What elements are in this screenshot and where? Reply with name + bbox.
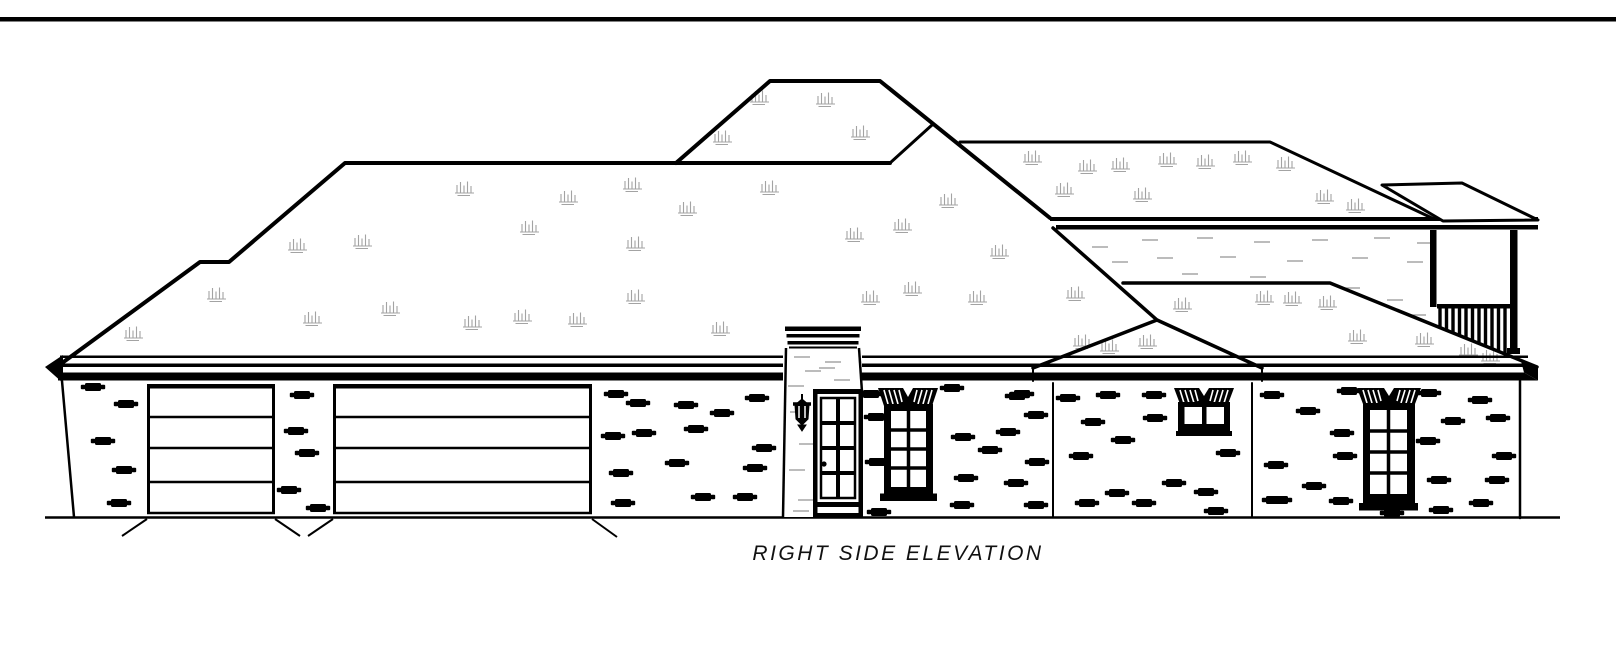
roof-outline — [58, 81, 1432, 381]
rear-hip-line — [890, 125, 932, 163]
brick-mark — [996, 428, 1020, 436]
brick-mark — [1162, 479, 1186, 487]
brick-mark — [752, 444, 776, 452]
brick-mark — [1260, 391, 1284, 399]
brick-mark — [867, 508, 891, 516]
brick-mark — [1264, 461, 1288, 469]
roof-texture-mark — [893, 219, 912, 233]
brick-mark — [1142, 391, 1166, 399]
brick-mark — [745, 394, 769, 402]
brick-mark — [1492, 452, 1516, 460]
brick-mark — [978, 446, 1002, 454]
window-center — [878, 388, 938, 501]
roof-texture-mark — [1283, 292, 1302, 306]
brick-mark — [1111, 436, 1135, 444]
brick-mark — [684, 425, 708, 433]
brick-mark — [1069, 452, 1093, 460]
brick-mark — [1329, 497, 1353, 505]
roof-texture-mark — [1078, 160, 1097, 174]
brick-mark — [1330, 429, 1354, 437]
brick-mark — [1132, 499, 1156, 507]
door-bottom-rail — [818, 502, 859, 507]
rear-porch — [1382, 183, 1538, 354]
roof-texture-mark — [711, 322, 730, 336]
brick-mark — [1333, 452, 1357, 460]
chimney-cap — [785, 327, 861, 332]
brick-mark — [277, 486, 301, 494]
roof-texture-mark — [1315, 190, 1334, 204]
roof-texture-mark — [1055, 183, 1074, 197]
brick-mark — [940, 384, 964, 392]
roof-texture-mark — [851, 126, 870, 140]
brick-mark — [691, 493, 715, 501]
elevation-sheet: RIGHT SIDE ELEVATION — [0, 0, 1616, 660]
brick-mark — [290, 391, 314, 399]
brick-mark — [733, 493, 757, 501]
sheet-border-rule — [0, 17, 1616, 22]
brick-mark — [295, 449, 319, 457]
brick-mark — [112, 466, 136, 474]
roof-texture-mark — [353, 235, 372, 249]
brick-mark — [1485, 476, 1509, 484]
roof-texture-mark — [381, 302, 400, 316]
brick-mark — [626, 399, 650, 407]
roof-texture-mark — [760, 181, 779, 195]
brick-mark — [954, 474, 978, 482]
roof-texture-mark — [1173, 298, 1192, 312]
porch-post-right — [1510, 230, 1518, 352]
roof-texture-mark — [1415, 333, 1434, 347]
roof-texture-mark — [1066, 287, 1085, 301]
brick-mark — [1204, 507, 1228, 515]
garage-door-header — [147, 384, 275, 389]
brick-mark — [284, 427, 308, 435]
garage-door-header — [333, 384, 592, 389]
brick-mark — [1096, 391, 1120, 399]
roof-texture-mark — [1023, 151, 1042, 165]
brick-mark — [1075, 499, 1099, 507]
roof-texture-mark — [1196, 155, 1215, 169]
roof-texture-mark — [1158, 153, 1177, 167]
entry-door — [813, 389, 863, 517]
porch-post-foot — [1507, 348, 1520, 354]
roof-texture-mark — [1255, 291, 1274, 305]
brick-mark — [1427, 476, 1451, 484]
brick-mark — [1081, 418, 1105, 426]
upper-hip-roof-edge — [676, 81, 1050, 218]
porch-post-left — [1430, 230, 1437, 307]
brick-mark — [1441, 417, 1465, 425]
roof-texture-mark — [678, 202, 697, 216]
roof-texture-mark — [1133, 188, 1152, 202]
roof-texture-mark — [303, 312, 322, 326]
roof-texture-mark — [623, 178, 642, 192]
brick-mark — [665, 459, 689, 467]
driveway-ticks — [122, 519, 617, 537]
roof-texture-mark — [990, 245, 1009, 259]
brick-mark — [81, 383, 105, 391]
brick-mark — [1025, 458, 1049, 466]
brick-mark — [632, 429, 656, 437]
brick-mark — [91, 437, 115, 445]
wall-corner-left — [62, 381, 74, 517]
brick-mark — [609, 469, 633, 477]
window-glass — [1185, 407, 1203, 424]
roof-texture-mark — [1233, 151, 1252, 165]
brick-mark — [1056, 394, 1080, 402]
brick-mark — [1468, 396, 1492, 404]
brick-mark — [674, 401, 698, 409]
brick-mark — [1004, 479, 1028, 487]
roof-texture-mark — [1348, 330, 1367, 344]
roof-texture-mark — [968, 291, 987, 305]
porch-rail — [1437, 304, 1510, 309]
bay-roof-left-slope — [1033, 320, 1157, 368]
door-handle — [821, 461, 826, 466]
brick-mark — [601, 432, 625, 440]
elevation-drawing: RIGHT SIDE ELEVATION — [0, 0, 1616, 660]
roof-texture-mark — [626, 237, 645, 251]
brick-mark — [1416, 437, 1440, 445]
roof-texture-mark — [816, 93, 835, 107]
roof-texture-mark — [939, 194, 958, 208]
brick-mark — [1296, 407, 1320, 415]
garage-doors — [147, 384, 592, 513]
brick-mark — [604, 390, 628, 398]
roof-texture-mark — [568, 313, 587, 327]
roof-texture-mark — [520, 221, 539, 235]
brick-mark — [1194, 488, 1218, 496]
brick-mark — [114, 400, 138, 408]
brick-mark — [1024, 501, 1048, 509]
brick-mark — [1486, 414, 1510, 422]
roof-texture-mark — [713, 131, 732, 145]
roof-texture-mark — [1138, 335, 1157, 349]
brick-mark — [1216, 449, 1240, 457]
roof-texture-mark — [1346, 199, 1365, 213]
roof-texture-mark — [903, 282, 922, 296]
roof-texture-mark — [513, 310, 532, 324]
brick-mark — [611, 499, 635, 507]
window-sill — [1176, 431, 1232, 436]
brick-mark — [1024, 411, 1048, 419]
roof-texture-mark — [1276, 157, 1295, 171]
roof-texture-mark — [845, 228, 864, 242]
roof-texture-mark — [1111, 158, 1130, 172]
rear-ridge — [960, 142, 1432, 218]
roof-texture-mark — [207, 288, 226, 302]
roof-texture-mark — [463, 316, 482, 330]
brick-mark — [306, 504, 330, 512]
brick-mark — [710, 409, 734, 417]
brick-mark — [951, 433, 975, 441]
roof-texture-mark — [626, 290, 645, 304]
upper-story — [1050, 217, 1538, 315]
brick-mark — [1469, 499, 1493, 507]
brick-mark — [1429, 506, 1453, 514]
brick-mark — [743, 464, 767, 472]
roof-texture-mark — [455, 182, 474, 196]
window-sill — [1359, 503, 1418, 511]
brick-mark — [107, 499, 131, 507]
roof-texture-mark — [1459, 344, 1478, 358]
brick-mark — [1105, 489, 1129, 497]
window-glass — [1207, 407, 1225, 424]
window-right — [1357, 388, 1421, 511]
window-bay — [1174, 388, 1234, 436]
roof-texture-mark — [861, 291, 880, 305]
roof-texture-mark — [1318, 296, 1337, 310]
roof-texture-mark — [124, 327, 143, 341]
porch-roof — [1382, 183, 1538, 221]
brick-mark — [1143, 414, 1167, 422]
brick-mark — [950, 501, 974, 509]
roof-texture-mark — [559, 191, 578, 205]
drawing-title: RIGHT SIDE ELEVATION — [752, 542, 1043, 565]
brick-mark — [1417, 389, 1441, 397]
brick-mark — [1302, 482, 1326, 490]
window-sill — [880, 494, 937, 502]
roof-texture-mark — [288, 239, 307, 253]
